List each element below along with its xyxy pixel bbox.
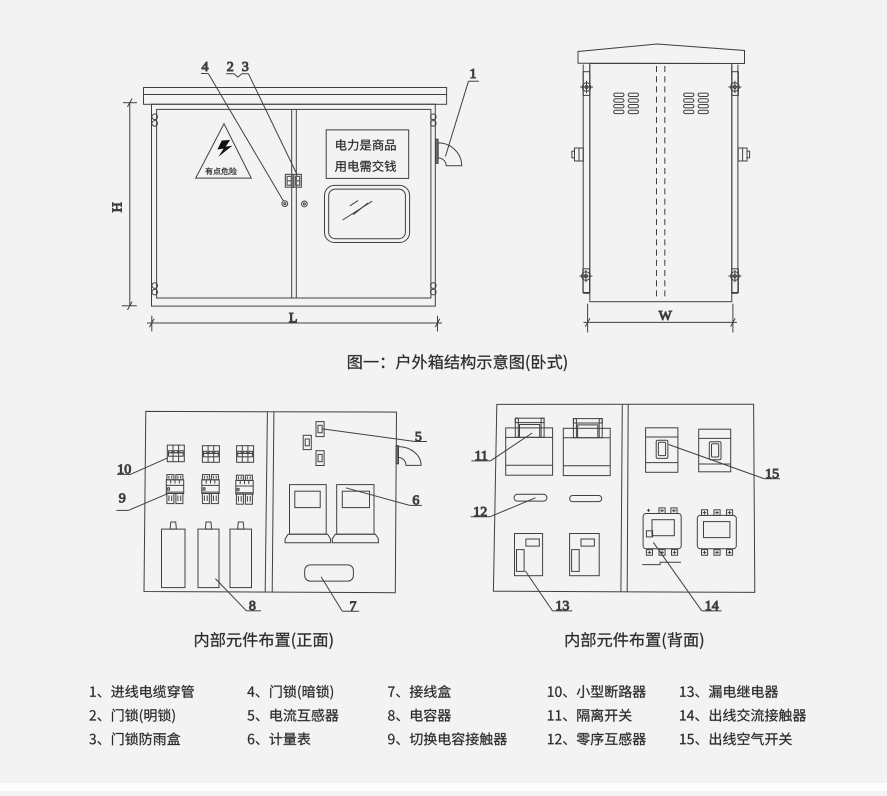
svg-text:6: 6	[412, 494, 419, 509]
svg-text:H: H	[111, 202, 126, 212]
svg-text:15: 15	[765, 467, 779, 482]
svg-text:9: 9	[119, 492, 126, 507]
svg-text:3: 3	[242, 60, 249, 75]
svg-text:12: 12	[473, 505, 487, 520]
svg-text:L: L	[289, 311, 298, 326]
svg-text:5: 5	[415, 430, 422, 445]
svg-text:8: 8	[249, 599, 256, 614]
svg-text:7: 7	[350, 600, 357, 615]
svg-text:11: 11	[474, 449, 487, 464]
svg-text:1: 1	[470, 67, 477, 82]
svg-text:10: 10	[117, 463, 131, 478]
svg-text:W: W	[659, 309, 673, 324]
svg-text:13: 13	[555, 599, 569, 614]
svg-text:14: 14	[705, 599, 719, 614]
svg-text:2: 2	[227, 60, 234, 75]
svg-text:4: 4	[202, 60, 209, 75]
